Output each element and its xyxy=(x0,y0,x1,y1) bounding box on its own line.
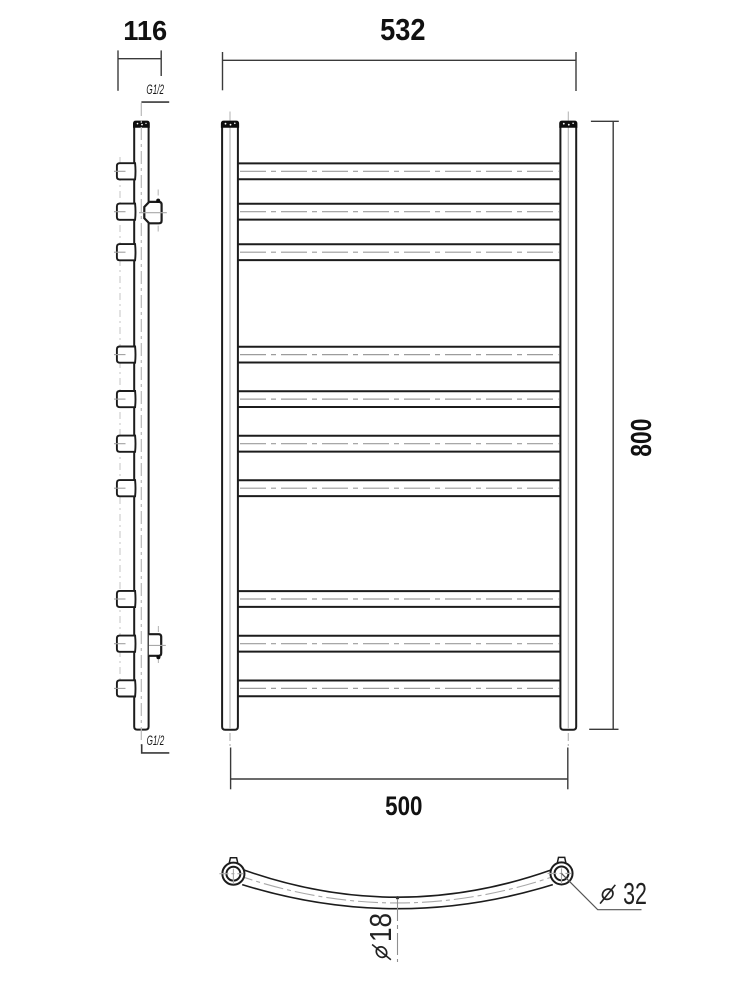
svg-text:32: 32 xyxy=(623,876,647,911)
svg-text:G1/2: G1/2 xyxy=(147,734,165,749)
svg-text:800: 800 xyxy=(627,418,658,456)
svg-text:G1/2: G1/2 xyxy=(146,83,164,98)
svg-text:532: 532 xyxy=(380,13,425,47)
svg-text:116: 116 xyxy=(123,15,167,47)
svg-text:18: 18 xyxy=(363,913,397,942)
svg-text:500: 500 xyxy=(385,792,422,821)
